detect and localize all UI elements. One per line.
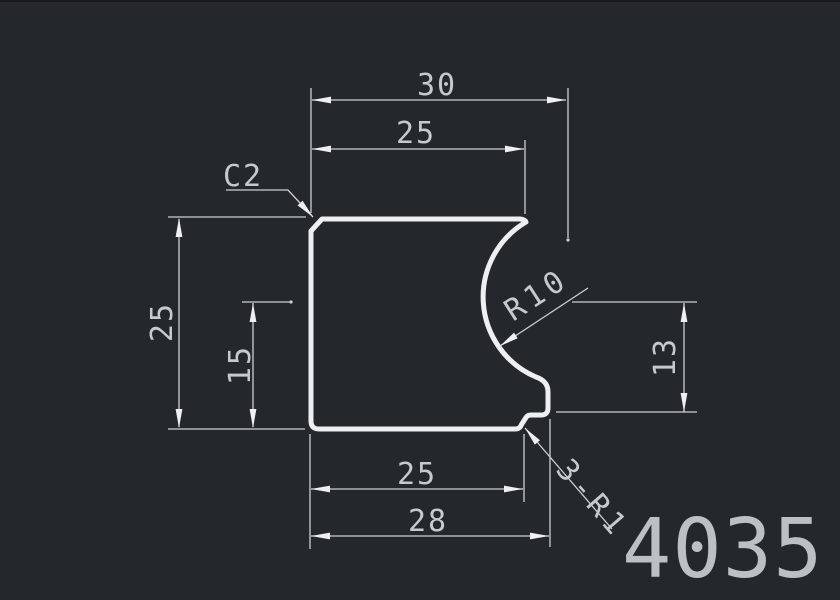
cad-drawing-canvas: 30 25 C2 25 15 R10 — [0, 0, 840, 600]
extension-end-dot — [289, 300, 292, 303]
dim-top-face-value: 25 — [396, 116, 436, 151]
dim-left-groove-value: 15 — [223, 345, 258, 385]
part-number: 4035 — [622, 502, 823, 597]
dim-left-overall-value: 25 — [145, 302, 180, 342]
dim-top-overall-value: 30 — [417, 68, 457, 103]
dim-bottom-face-value: 25 — [397, 457, 437, 492]
top-edge-strip — [0, 0, 840, 2]
cad-viewport: 30 25 C2 25 15 R10 — [0, 0, 840, 600]
extension-end-dot — [566, 238, 569, 241]
dim-right-groove-value: 13 — [648, 337, 683, 377]
chamfer-callout-value: C2 — [223, 159, 263, 194]
dim-bottom-overall-value: 28 — [408, 504, 448, 539]
